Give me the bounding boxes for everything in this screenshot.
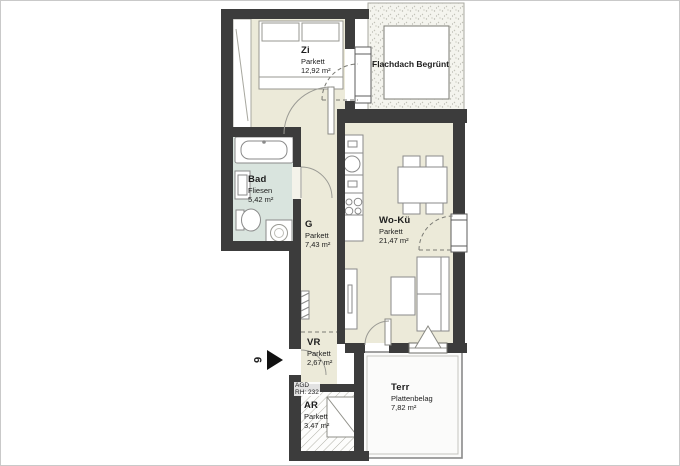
zi-window-end-top (355, 47, 371, 54)
toilet-bowl (242, 209, 261, 231)
entrance-door-gap (289, 349, 301, 375)
shower-drain-inner (275, 229, 284, 238)
floor-plan-canvas: Zi Parkett 12,92 m² Flachdach Begrünt Ba… (0, 0, 680, 466)
dining-table (398, 167, 447, 203)
wall-bad-right-upper (293, 137, 301, 167)
cooktop-burner-4 (355, 208, 361, 214)
zi-window-frame (355, 47, 371, 103)
floor-plan-drawing (1, 1, 680, 466)
storage-room-area (297, 392, 358, 451)
dining-chair-1 (403, 156, 420, 167)
wall-zi-right-upper (345, 19, 355, 49)
wall-ar-bottom (289, 451, 369, 461)
wall-woku-bottom-3 (447, 343, 467, 353)
cooktop-burner-3 (345, 207, 353, 215)
terrace-area (363, 352, 462, 458)
vr-door-leaf (385, 319, 391, 345)
wall-vr-ar (289, 384, 361, 392)
kitchen-sink (344, 156, 360, 172)
dining-chair-3 (403, 203, 420, 214)
wall-left-mid (289, 251, 301, 349)
bathroom-sink-basin (238, 175, 247, 195)
wall-bad-top (233, 127, 301, 137)
terrace-outer (363, 352, 462, 458)
woku-window-end-top (451, 214, 467, 220)
cooktop-burner-2 (354, 198, 362, 206)
wall-g-woku (337, 123, 345, 344)
wall-woku-top (337, 109, 467, 123)
green-roof-area (368, 3, 464, 111)
dining-chair-2 (426, 156, 443, 167)
bed-pillow-left (262, 23, 299, 41)
kitchen-appliance-mid (348, 181, 357, 187)
bathtub-faucet (263, 141, 266, 144)
entrance-arrow-icon (267, 350, 283, 370)
bed-pillow-right (302, 23, 339, 41)
sideboard-handle (348, 285, 352, 313)
wall-zi-top (221, 9, 369, 19)
woku-window-end-bottom (451, 246, 467, 252)
corridor-vr-floor (301, 133, 337, 384)
wall-ar-terrace (354, 344, 364, 456)
wall-woku-right-upper (453, 123, 465, 215)
wall-bad-right-lower (293, 199, 301, 241)
wall-bad-bottom (221, 241, 301, 251)
wall-woku-bottom-2 (389, 343, 409, 353)
wall-left-upper (221, 9, 233, 251)
wall-woku-right-lower (453, 251, 465, 353)
zi-door-leaf (328, 87, 334, 134)
dining-chair-4 (426, 203, 443, 214)
roof-skylight (384, 26, 449, 99)
kitchen-appliance-top (348, 141, 357, 147)
side-table (391, 277, 415, 315)
cooktop-burner-1 (346, 199, 352, 205)
